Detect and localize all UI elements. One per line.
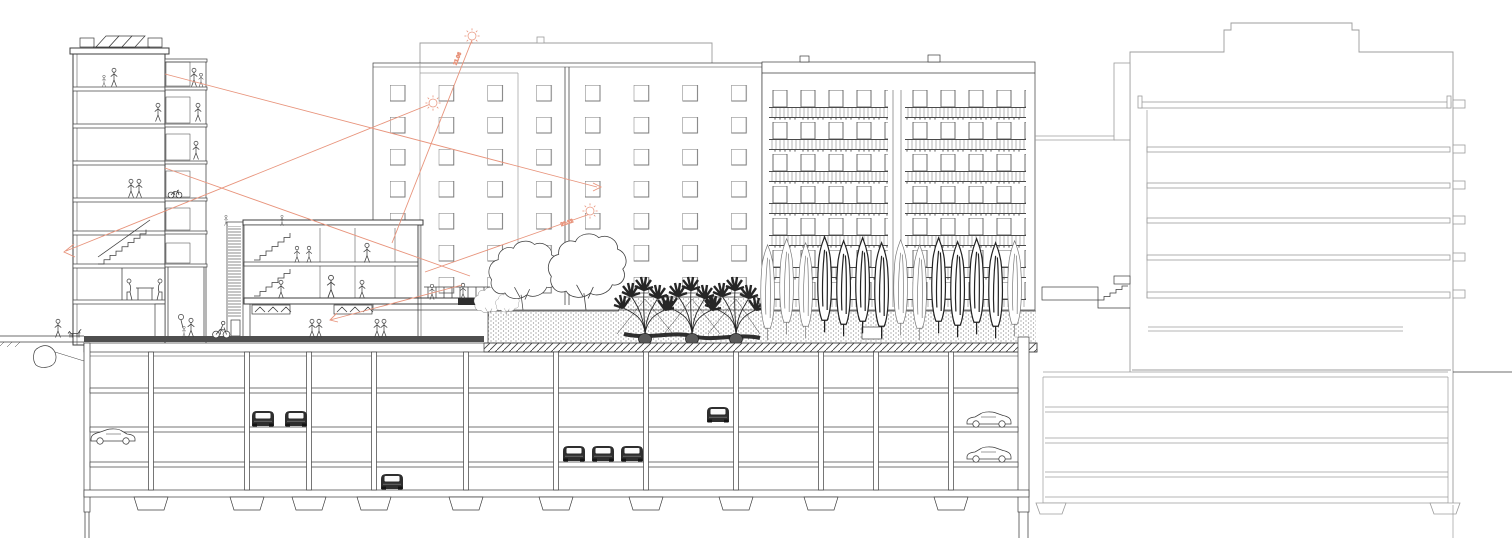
louvre-screen — [166, 62, 190, 86]
facade-fins — [1453, 100, 1465, 298]
person-figure — [309, 319, 315, 337]
rooftop-vent — [800, 56, 809, 62]
root-ball-street-tree — [34, 346, 56, 368]
person-figure — [188, 318, 195, 337]
footing — [1036, 503, 1066, 514]
car-side-icon — [967, 447, 1011, 462]
car-rear-icon — [381, 474, 403, 490]
stair-tower — [70, 36, 207, 345]
link-wall — [1035, 136, 1115, 140]
street-surface — [84, 336, 484, 342]
rooftop-vent — [928, 55, 940, 62]
left-annex — [1114, 63, 1130, 140]
entry-stair — [1042, 276, 1130, 308]
parked-cars — [91, 407, 1011, 490]
sidewalk-left — [0, 336, 84, 367]
door — [231, 320, 240, 336]
car-rear-icon — [707, 407, 729, 423]
person-figure — [55, 319, 61, 337]
solar-panels-icon — [93, 36, 150, 47]
louvre-screen — [166, 208, 190, 230]
rear-slab-building — [420, 37, 712, 63]
parapet-block — [148, 38, 162, 47]
roof-terrace-slab — [1138, 96, 1451, 108]
parked-bicycle-icon — [168, 190, 182, 198]
perimeter-wall-right — [1018, 337, 1029, 512]
louvre-screen — [166, 243, 190, 263]
car-rear-icon — [563, 446, 585, 462]
car-rear-icon — [285, 411, 307, 427]
person-figure — [193, 141, 199, 159]
louvre-screen — [166, 97, 190, 123]
stepped-parapet-outline — [1130, 23, 1453, 505]
roof-slab — [70, 48, 169, 54]
external-stair-shaft — [165, 59, 207, 345]
rooftop-vent — [537, 37, 544, 43]
roof-slab — [243, 220, 423, 225]
car-rear-icon — [592, 446, 614, 462]
diaphragm-piles — [85, 512, 1028, 538]
mid-slab — [244, 262, 418, 266]
base-slab — [84, 490, 1029, 497]
parapet-block — [80, 38, 94, 47]
deck-slab-hatch — [484, 343, 1037, 352]
perimeter-wall-left — [84, 343, 90, 512]
balloon-icon — [178, 314, 183, 319]
person-figure — [199, 73, 204, 86]
person-figure — [316, 319, 322, 337]
basement-levels — [1036, 372, 1460, 538]
person-figure — [195, 103, 201, 121]
landing-slabs — [165, 87, 207, 267]
person-figure — [381, 319, 387, 337]
architectural-section-canvas: 21.06 21.12 — [0, 0, 1512, 541]
underground-parking — [84, 337, 1029, 538]
car-rear-icon — [621, 446, 643, 462]
person-figure — [191, 68, 197, 86]
planter-box — [862, 327, 882, 339]
person-figure — [374, 319, 380, 337]
sun-icon — [464, 28, 479, 43]
footing — [1430, 503, 1460, 514]
column-footings — [134, 497, 968, 510]
section-drawing: 21.06 21.12 — [0, 0, 1512, 541]
louvre-screen — [166, 134, 190, 160]
right-section-building — [1036, 23, 1512, 538]
arrowhead-hook-icon — [330, 313, 338, 322]
car-side-icon — [967, 412, 1011, 427]
car-rear-icon — [252, 411, 274, 427]
side-shaft — [227, 222, 243, 338]
floor-slabs — [1147, 147, 1450, 298]
ground-hall — [1130, 300, 1451, 372]
podium-slab — [244, 298, 490, 304]
